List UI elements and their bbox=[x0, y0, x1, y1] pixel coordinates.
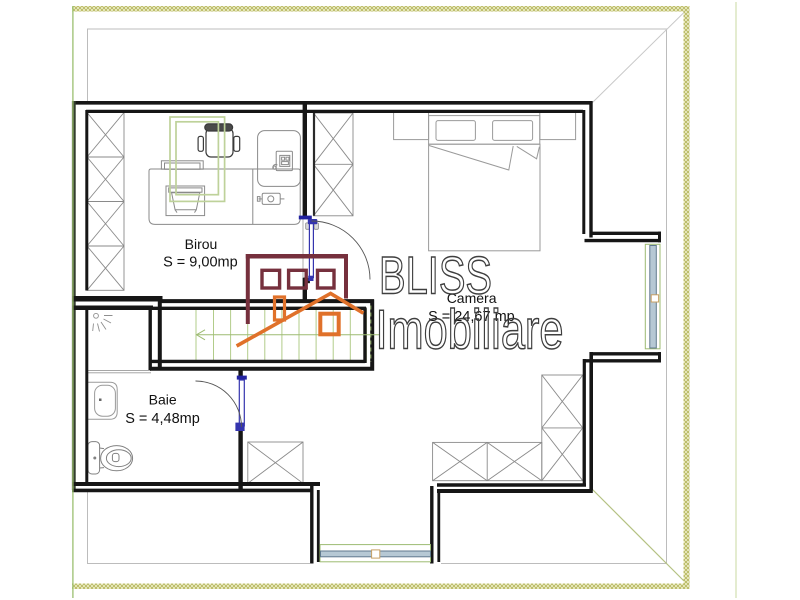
svg-text:S = 4,48mp: S = 4,48mp bbox=[125, 411, 200, 427]
svg-text:S = 9,00mp: S = 9,00mp bbox=[163, 254, 238, 270]
svg-text:Imobiliare: Imobiliare bbox=[376, 298, 564, 361]
svg-text:Birou: Birou bbox=[185, 236, 218, 252]
svg-text:Baie: Baie bbox=[149, 392, 177, 408]
